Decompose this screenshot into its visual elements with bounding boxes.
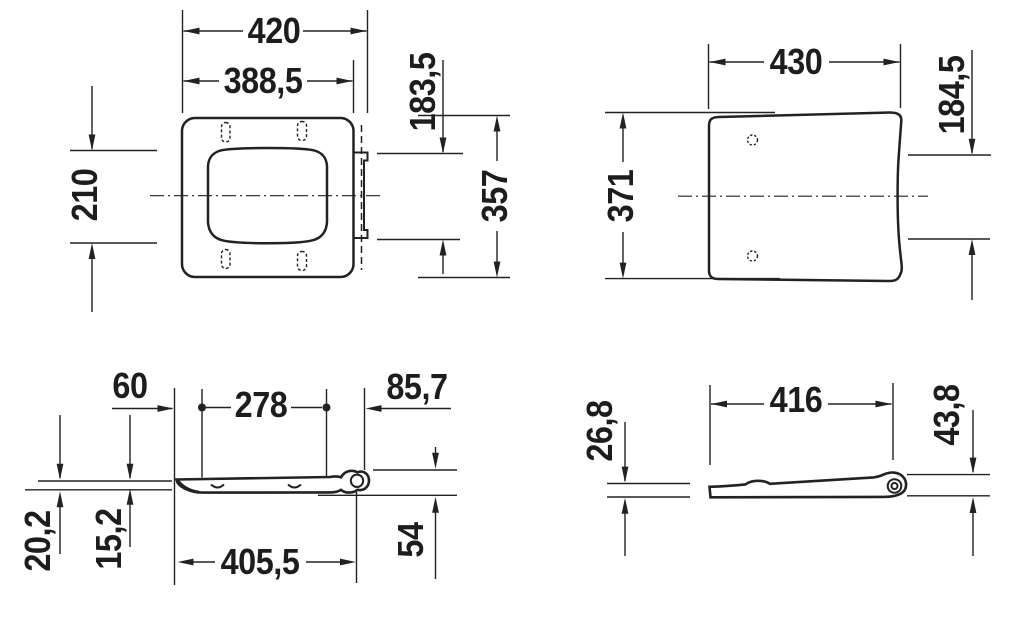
- dim-label-lid-length: 416: [770, 382, 823, 418]
- dim-label-inner-width: 388,5: [224, 63, 303, 99]
- dim-label-overall-depth: 357: [477, 170, 513, 223]
- dim-label-lid-hinge-height: 43,8: [929, 384, 965, 445]
- dim-label-lid-offset: 184,5: [934, 56, 970, 135]
- dim-label-lid-width: 430: [770, 44, 823, 80]
- dim-label-half-depth: 210: [67, 169, 103, 222]
- dim-label-lid-front-height: 26,8: [582, 400, 618, 461]
- dim-label-seat-length: 405,5: [221, 544, 300, 580]
- dimension-lines-seat-top: [70, 10, 510, 312]
- dim-label-hinge-height: 54: [393, 522, 429, 557]
- dim-label-profile-height: 15,2: [91, 508, 127, 569]
- dim-label-hinge-offset: 85,7: [386, 369, 447, 405]
- lid-profile: [710, 473, 907, 498]
- seat-top-view: [70, 10, 510, 312]
- dim-label-front-height: 20,2: [20, 510, 56, 571]
- dim-label-lid-depth: 371: [603, 170, 639, 223]
- screw-hole: [748, 135, 758, 145]
- dim-label-right-offset: 183,5: [405, 53, 441, 132]
- drawing-canvas: [0, 0, 1024, 626]
- dim-label-front-to-bumper: 60: [112, 368, 147, 404]
- seat-profile: [177, 471, 370, 493]
- screw-hole: [748, 251, 758, 261]
- dim-label-bumper-spacing: 278: [235, 387, 288, 423]
- technical-drawing: 420 388,5 183,5 210 357 430 371 184,5 60…: [0, 0, 1024, 626]
- dim-label-outer-width: 420: [248, 13, 301, 49]
